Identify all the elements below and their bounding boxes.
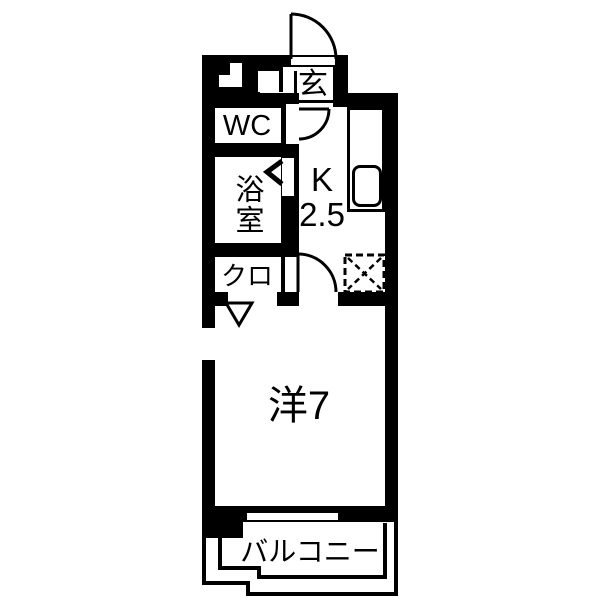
- floor-plan: 玄 WC 浴室 K 2.5 クロ 洋7 バルコニー: [0, 0, 600, 600]
- bathroom-label: 浴室: [231, 174, 262, 236]
- toilet-label: WC: [217, 110, 277, 143]
- kitchen-letter-label: K: [305, 163, 339, 197]
- kitchen-size-label: 2.5: [296, 198, 348, 232]
- entrance-door-arc: [291, 14, 336, 59]
- bath-door-chevron: [267, 161, 282, 184]
- closet-label: クロ: [218, 261, 276, 291]
- main-room-label: 洋7: [259, 384, 339, 428]
- entrance-label: 玄: [296, 68, 330, 102]
- kitchen-door-arc: [298, 254, 336, 292]
- balcony-label: バルコニー: [220, 537, 400, 567]
- wc-door-arc: [299, 109, 329, 139]
- closet-door-triangle: [226, 303, 252, 325]
